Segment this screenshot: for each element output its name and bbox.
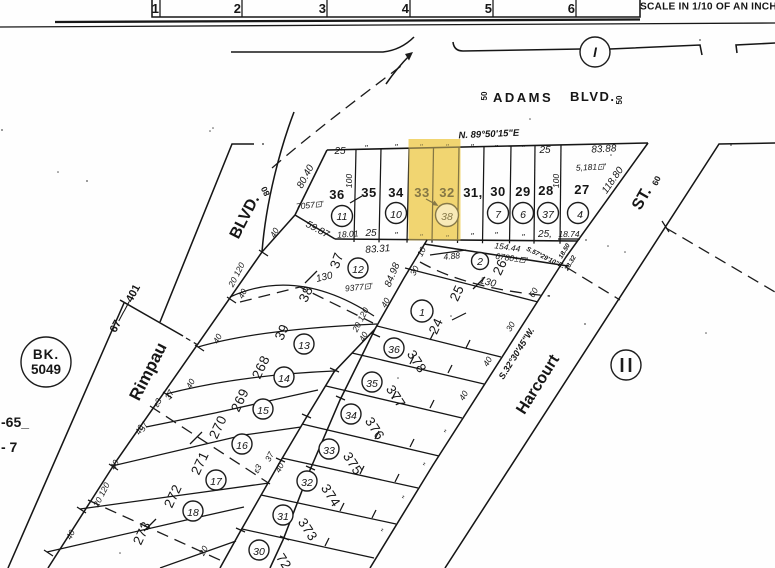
svg-text:83.31: 83.31 bbox=[365, 243, 391, 256]
svg-text:2: 2 bbox=[476, 256, 483, 268]
svg-text:30: 30 bbox=[490, 184, 505, 199]
svg-text:29: 29 bbox=[515, 184, 530, 199]
svg-text:ADAMS: ADAMS bbox=[493, 90, 553, 105]
svg-text:16: 16 bbox=[236, 440, 248, 452]
svg-text:5: 5 bbox=[485, 1, 492, 16]
svg-text:35: 35 bbox=[366, 378, 378, 390]
svg-text:50: 50 bbox=[480, 91, 489, 100]
svg-text:11: 11 bbox=[337, 211, 348, 223]
svg-text:31: 31 bbox=[277, 511, 289, 523]
svg-text:14: 14 bbox=[278, 373, 290, 385]
svg-text:32: 32 bbox=[301, 477, 313, 489]
svg-text:31,: 31, bbox=[463, 185, 483, 200]
svg-text:4: 4 bbox=[577, 209, 583, 221]
svg-text:100: 100 bbox=[344, 174, 354, 188]
svg-text:4: 4 bbox=[402, 1, 410, 16]
svg-text:33: 33 bbox=[323, 445, 335, 457]
svg-text:1: 1 bbox=[152, 1, 159, 16]
svg-text:25,: 25, bbox=[537, 229, 552, 240]
svg-text:34: 34 bbox=[388, 185, 404, 200]
svg-text:35: 35 bbox=[361, 185, 376, 200]
svg-text:36: 36 bbox=[329, 187, 344, 202]
svg-text:83.88: 83.88 bbox=[591, 143, 617, 155]
svg-text:BLVD.: BLVD. bbox=[570, 89, 616, 104]
svg-text:13: 13 bbox=[298, 340, 310, 352]
svg-text:I: I bbox=[593, 45, 597, 60]
svg-text:5049: 5049 bbox=[31, 362, 61, 377]
svg-text:4.88: 4.88 bbox=[443, 250, 461, 262]
svg-text:2: 2 bbox=[234, 1, 241, 16]
svg-text:6: 6 bbox=[568, 1, 575, 16]
svg-text:25: 25 bbox=[364, 228, 377, 239]
svg-text:- 7: - 7 bbox=[1, 439, 18, 455]
svg-text:5,181⊡': 5,181⊡' bbox=[576, 161, 607, 173]
svg-text:17: 17 bbox=[210, 476, 223, 488]
svg-text:25: 25 bbox=[333, 146, 346, 157]
svg-text:3: 3 bbox=[319, 1, 326, 16]
svg-text:100: 100 bbox=[551, 174, 561, 188]
svg-text:-65_: -65_ bbox=[1, 414, 29, 430]
svg-text:12: 12 bbox=[352, 264, 364, 276]
svg-text:50: 50 bbox=[615, 95, 624, 104]
svg-text:18.01: 18.01 bbox=[337, 228, 359, 239]
svg-text:SCALE IN 1/10 OF AN INCH: SCALE IN 1/10 OF AN INCH bbox=[640, 2, 775, 13]
svg-text:37: 37 bbox=[542, 209, 555, 221]
svg-text:1: 1 bbox=[419, 307, 425, 319]
svg-text:34: 34 bbox=[345, 410, 357, 422]
svg-text:10: 10 bbox=[390, 209, 402, 221]
svg-text:6: 6 bbox=[520, 209, 526, 221]
svg-text:25: 25 bbox=[538, 145, 551, 156]
svg-text:18.74: 18.74 bbox=[558, 229, 580, 239]
svg-text:18: 18 bbox=[187, 507, 199, 519]
svg-text:27: 27 bbox=[574, 182, 589, 197]
svg-text:15: 15 bbox=[257, 405, 269, 417]
svg-text:BK.: BK. bbox=[33, 347, 59, 362]
svg-text:30: 30 bbox=[253, 546, 265, 558]
svg-text:36: 36 bbox=[388, 344, 400, 356]
